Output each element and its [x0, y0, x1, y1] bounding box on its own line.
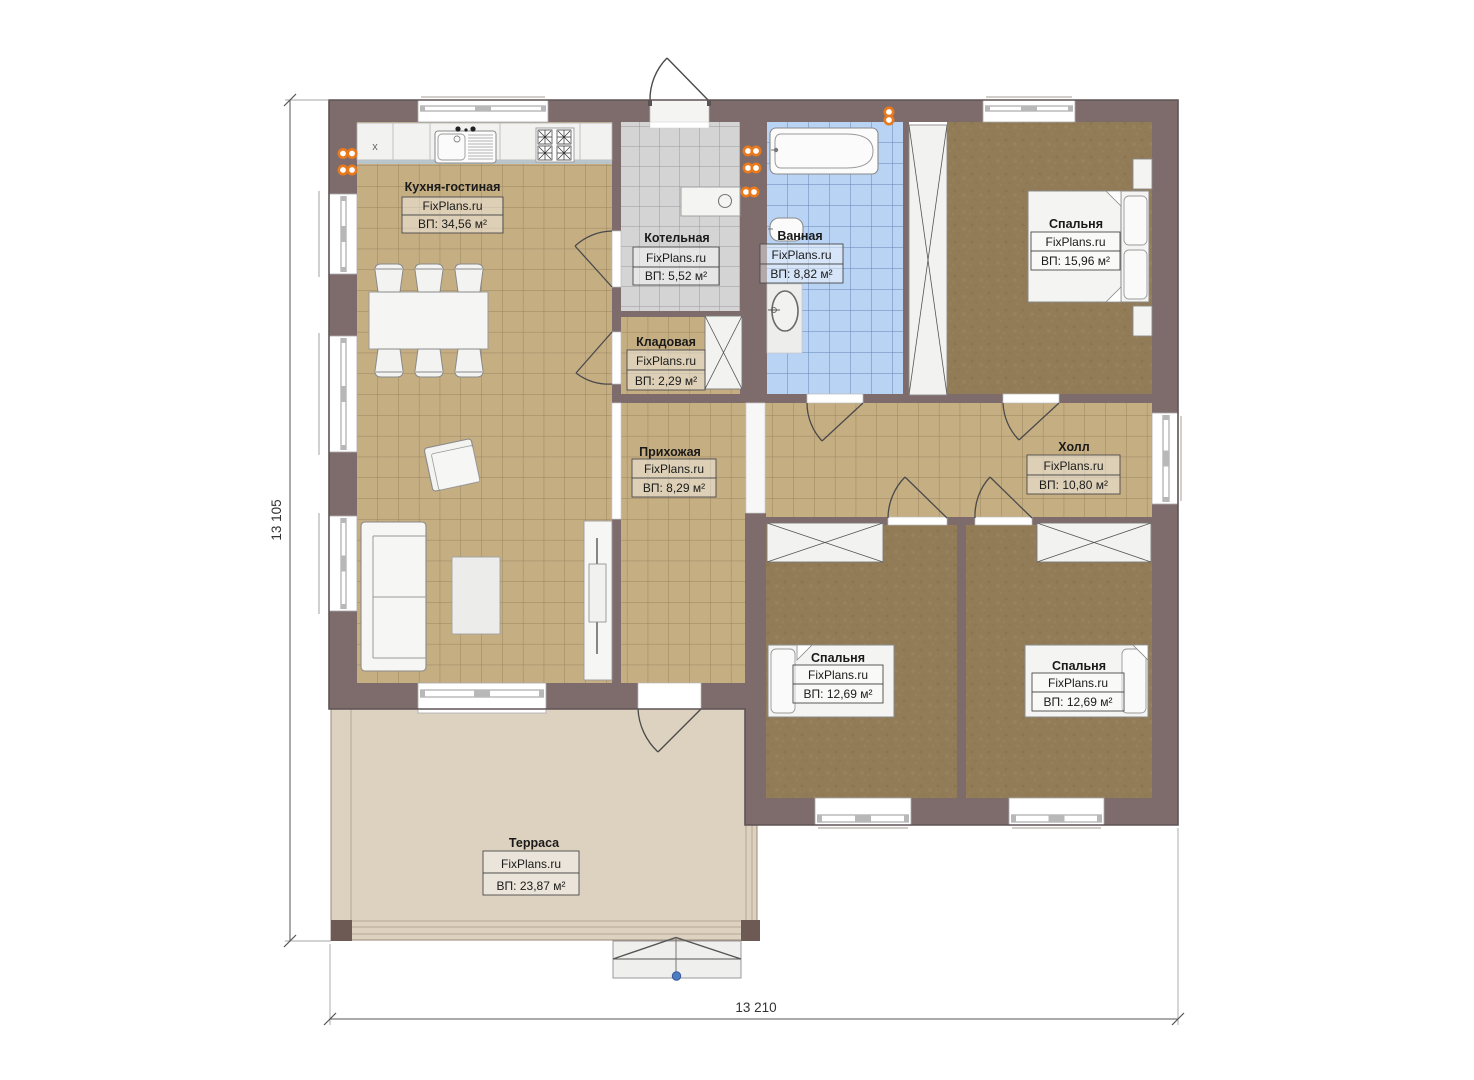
- svg-text:FixPlans.ru: FixPlans.ru: [501, 857, 561, 871]
- svg-text:FixPlans.ru: FixPlans.ru: [422, 199, 482, 213]
- svg-text:Терраса: Терраса: [509, 836, 560, 850]
- svg-text:13 210: 13 210: [735, 1000, 776, 1015]
- svg-text:Кладовая: Кладовая: [636, 335, 696, 349]
- svg-text:ВП: 23,87 м²: ВП: 23,87 м²: [497, 879, 566, 893]
- svg-text:ВП: 12,69 м²: ВП: 12,69 м²: [1044, 695, 1113, 709]
- svg-text:Котельная: Котельная: [644, 231, 709, 245]
- svg-text:ВП: 8,82 м²: ВП: 8,82 м²: [770, 267, 832, 281]
- svg-text:FixPlans.ru: FixPlans.ru: [1043, 459, 1103, 473]
- svg-text:FixPlans.ru: FixPlans.ru: [636, 354, 696, 368]
- svg-text:x: x: [372, 141, 378, 153]
- svg-text:ВП: 34,56 м²: ВП: 34,56 м²: [418, 217, 487, 231]
- svg-text:ВП: 2,29 м²: ВП: 2,29 м²: [635, 374, 697, 388]
- svg-text:13 105: 13 105: [269, 499, 284, 540]
- svg-text:FixPlans.ru: FixPlans.ru: [646, 251, 706, 265]
- svg-text:Кухня-гостиная: Кухня-гостиная: [405, 180, 501, 194]
- svg-text:FixPlans.ru: FixPlans.ru: [771, 248, 831, 262]
- svg-text:Ванная: Ванная: [777, 229, 822, 243]
- svg-text:Спальня: Спальня: [811, 651, 865, 665]
- svg-text:Спальня: Спальня: [1049, 217, 1103, 231]
- svg-text:FixPlans.ru: FixPlans.ru: [1048, 676, 1108, 690]
- svg-text:ВП: 10,80 м²: ВП: 10,80 м²: [1039, 478, 1108, 492]
- svg-text:ВП: 12,69 м²: ВП: 12,69 м²: [804, 687, 873, 701]
- svg-text:Холл: Холл: [1058, 440, 1089, 454]
- svg-text:FixPlans.ru: FixPlans.ru: [808, 668, 868, 682]
- svg-text:Спальня: Спальня: [1052, 659, 1106, 673]
- svg-text:ВП: 15,96 м²: ВП: 15,96 м²: [1041, 254, 1110, 268]
- svg-text:FixPlans.ru: FixPlans.ru: [1045, 235, 1105, 249]
- svg-text:Прихожая: Прихожая: [639, 445, 701, 459]
- svg-text:ВП: 5,52 м²: ВП: 5,52 м²: [645, 269, 707, 283]
- svg-text:ВП: 8,29 м²: ВП: 8,29 м²: [643, 481, 705, 495]
- svg-text:FixPlans.ru: FixPlans.ru: [644, 462, 704, 476]
